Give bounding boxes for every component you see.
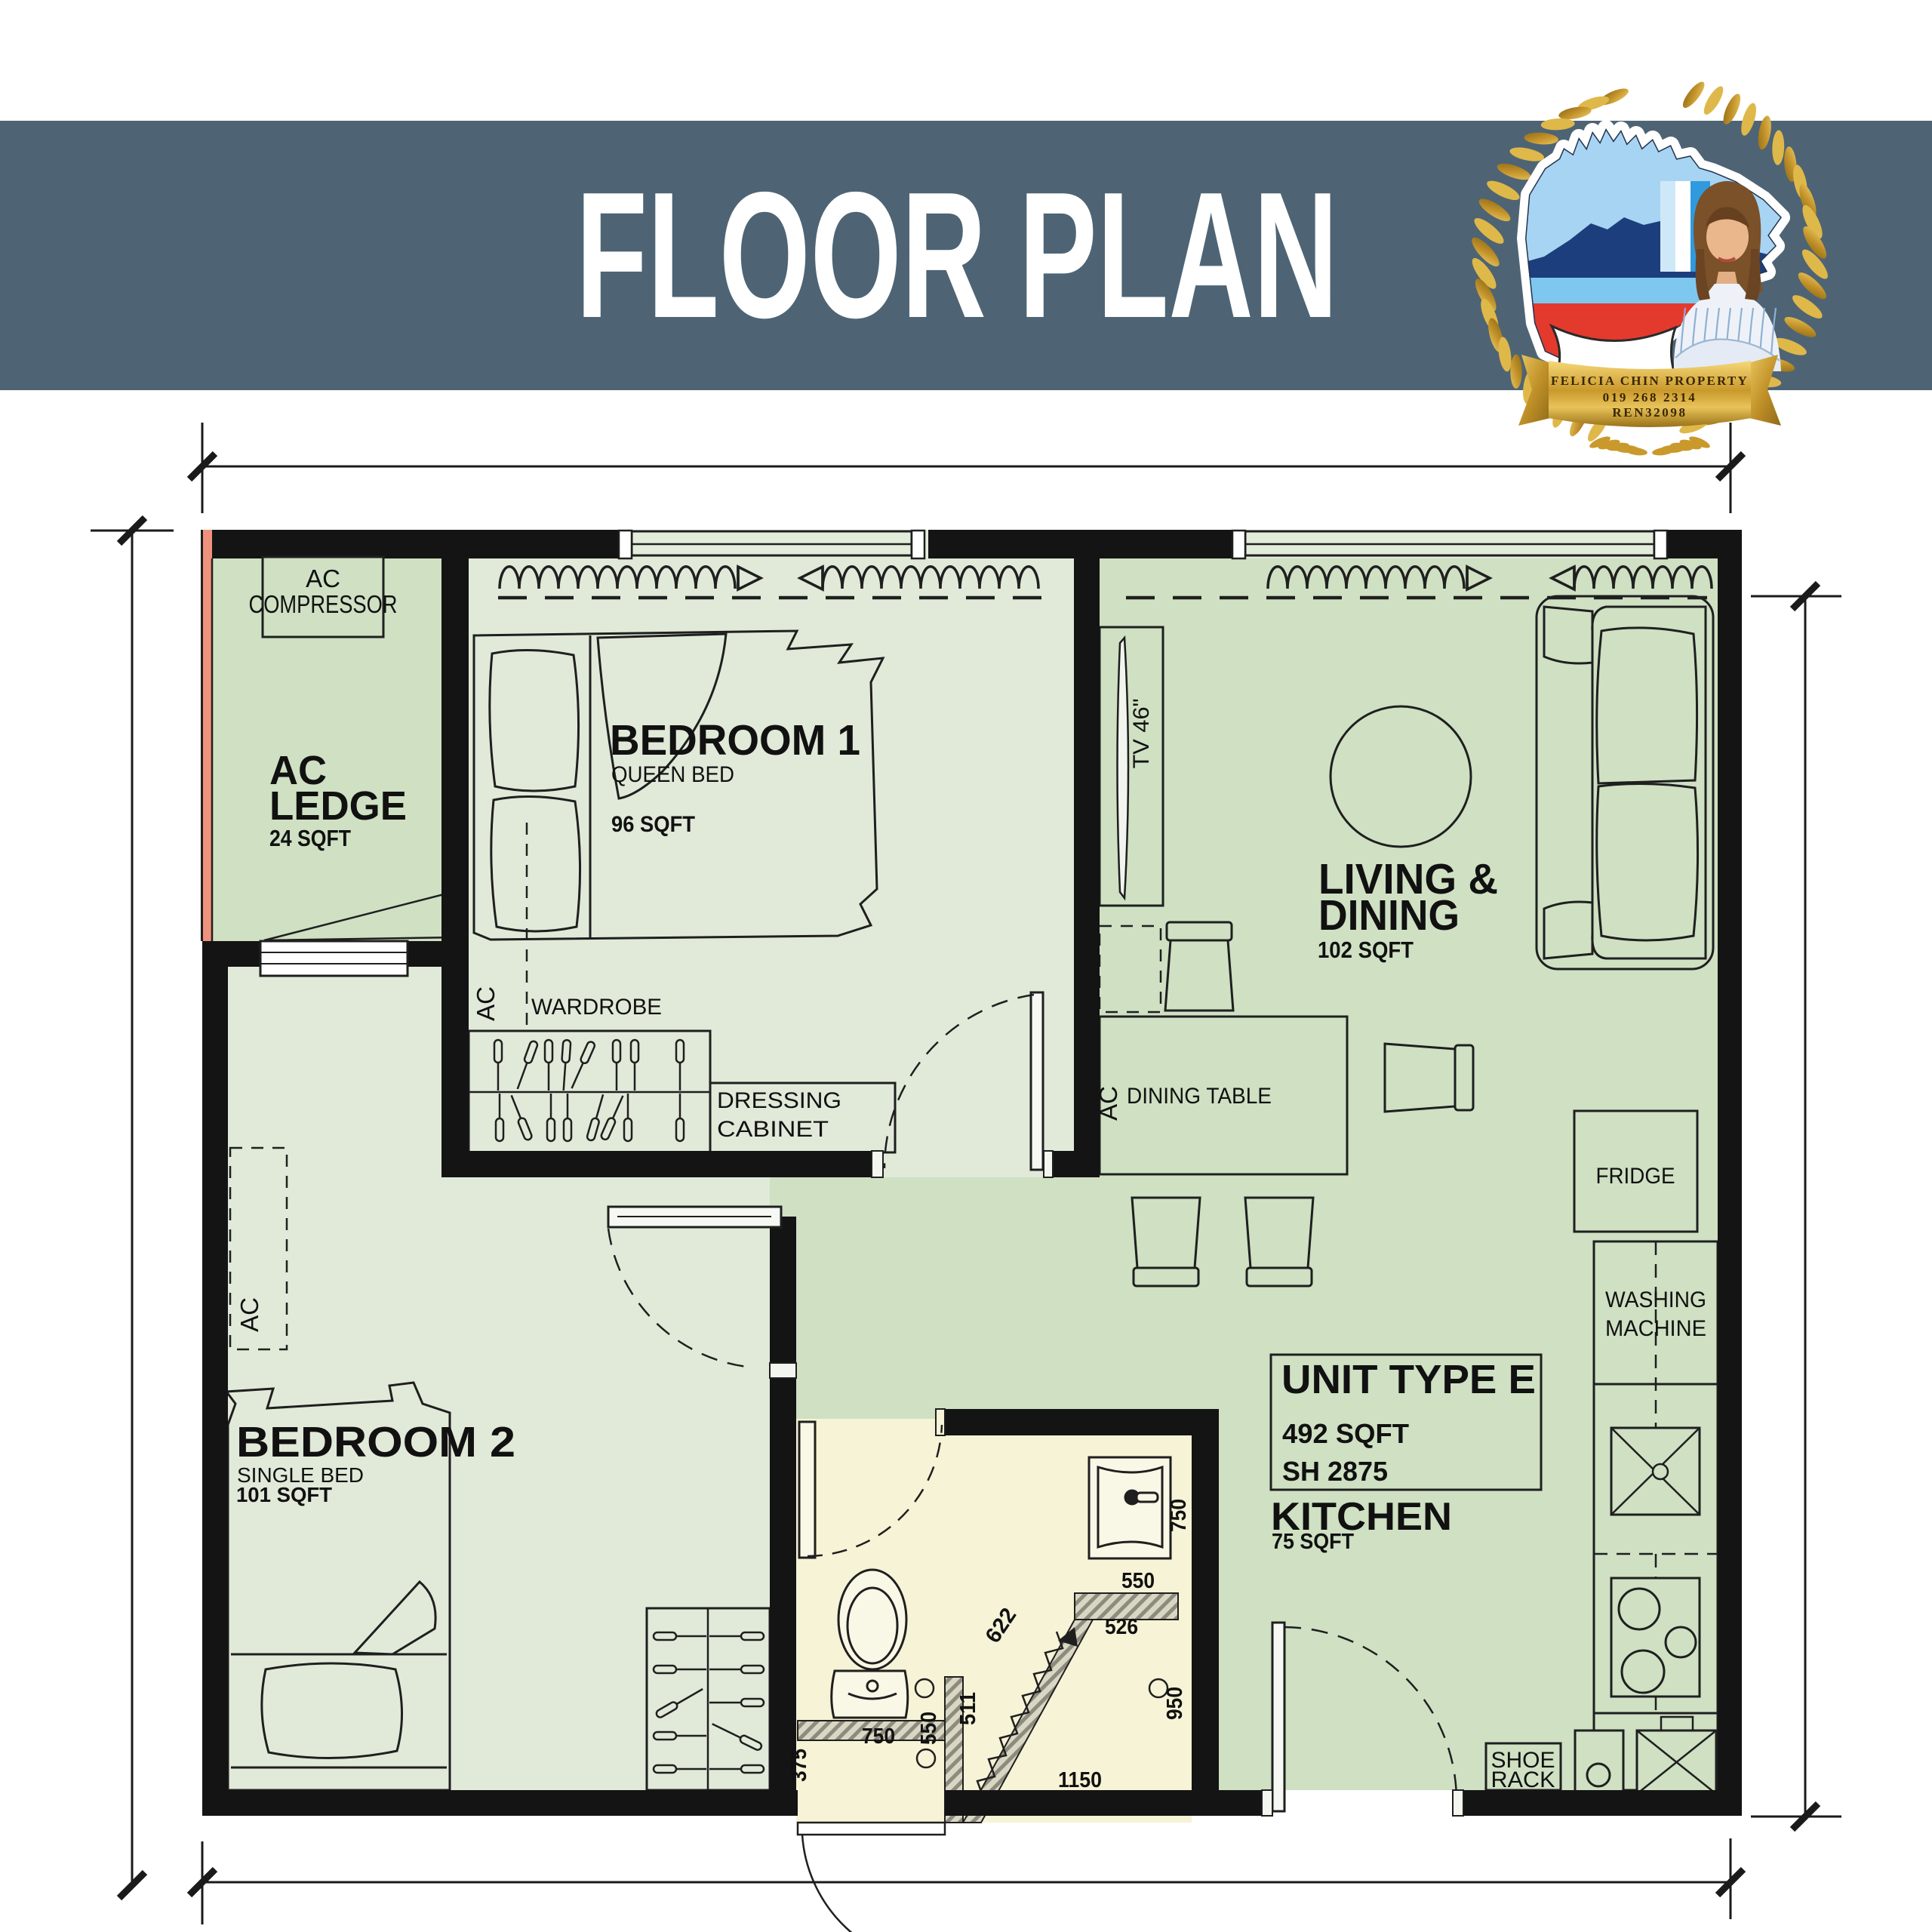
svg-text:QUEEN BED: QUEEN BED [611, 762, 734, 787]
svg-text:RACK: RACK [1491, 1767, 1555, 1792]
svg-text:526: 526 [1105, 1615, 1138, 1639]
svg-text:CABINET: CABINET [717, 1117, 829, 1142]
svg-text:FLOOR PLAN: FLOOR PLAN [576, 155, 1338, 355]
svg-text:REN32098: REN32098 [1612, 405, 1687, 420]
svg-text:WARDROBE: WARDROBE [531, 995, 662, 1020]
svg-text:DRESSING: DRESSING [717, 1088, 841, 1113]
svg-text:75 SQFT: 75 SQFT [1272, 1530, 1354, 1554]
svg-text:019 268 2314: 019 268 2314 [1603, 390, 1697, 405]
svg-text:AC: AC [1094, 1086, 1122, 1121]
svg-text:DINING TABLE: DINING TABLE [1127, 1084, 1272, 1109]
svg-text:WASHING: WASHING [1605, 1287, 1706, 1312]
svg-text:AC: AC [306, 565, 340, 592]
svg-text:AC: AC [235, 1297, 263, 1332]
svg-text:750: 750 [862, 1724, 895, 1749]
svg-text:MACHINE: MACHINE [1605, 1316, 1706, 1341]
svg-text:96 SQFT: 96 SQFT [611, 812, 695, 837]
svg-text:1150: 1150 [1058, 1768, 1102, 1792]
svg-text:950: 950 [1163, 1687, 1187, 1720]
svg-text:511: 511 [956, 1692, 980, 1725]
svg-text:102 SQFT: 102 SQFT [1318, 937, 1414, 963]
svg-text:550: 550 [1121, 1569, 1155, 1593]
svg-text:492 SQFT: 492 SQFT [1282, 1418, 1409, 1449]
svg-text:FRIDGE: FRIDGE [1596, 1164, 1675, 1189]
svg-text:AC: AC [472, 986, 500, 1021]
svg-text:550: 550 [917, 1712, 941, 1745]
svg-text:COMPRESSOR: COMPRESSOR [249, 590, 398, 618]
svg-text:BEDROOM 2: BEDROOM 2 [236, 1418, 515, 1466]
svg-text:101 SQFT: 101 SQFT [236, 1483, 332, 1506]
svg-text:DINING: DINING [1318, 891, 1460, 940]
svg-text:24 SQFT: 24 SQFT [269, 825, 351, 851]
svg-text:BEDROOM 1: BEDROOM 1 [610, 716, 860, 764]
svg-text:UNIT TYPE E: UNIT TYPE E [1281, 1357, 1536, 1402]
svg-text:TV 46": TV 46" [1129, 699, 1154, 769]
svg-text:LEDGE: LEDGE [269, 783, 407, 829]
svg-text:375: 375 [787, 1749, 811, 1782]
svg-text:FELICIA CHIN PROPERTY: FELICIA CHIN PROPERTY [1551, 374, 1749, 388]
svg-text:750: 750 [1167, 1499, 1191, 1532]
svg-text:SH 2875: SH 2875 [1282, 1456, 1388, 1487]
